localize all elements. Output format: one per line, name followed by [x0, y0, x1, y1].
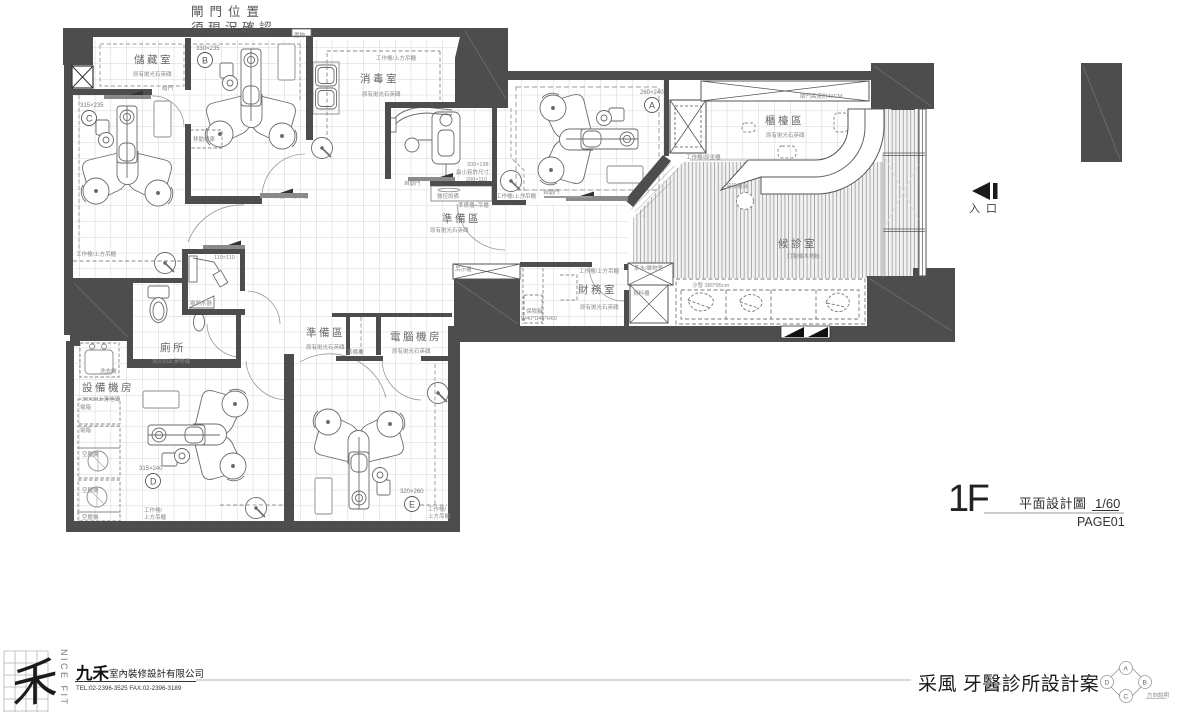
- svg-text:方向說明: 方向說明: [1147, 691, 1170, 699]
- svg-text:原有拋光石英磚: 原有拋光石英磚: [392, 347, 431, 355]
- svg-text:C: C: [86, 114, 93, 124]
- svg-text:電箱: 電箱: [80, 403, 92, 411]
- svg-text:保險箱: 保險箱: [526, 307, 543, 315]
- svg-text:320×260: 320×260: [400, 489, 424, 495]
- svg-text:E: E: [409, 500, 415, 510]
- svg-text:30X30止滑地磚: 30X30止滑地磚: [152, 357, 190, 365]
- svg-text:吊示櫃: 吊示櫃: [455, 265, 472, 273]
- svg-text:電熱水器: 電熱水器: [190, 299, 213, 307]
- svg-text:廁所: 廁所: [160, 341, 186, 354]
- svg-text:D: D: [150, 477, 157, 487]
- svg-text:工作檯/上方吊櫃: 工作檯/上方吊櫃: [376, 54, 417, 62]
- svg-text:110×110: 110×110: [214, 255, 235, 261]
- svg-text:自動門: 自動門: [404, 179, 421, 187]
- svg-text:工作檯/上方吊櫃: 工作檯/上方吊櫃: [268, 192, 309, 200]
- svg-text:A: A: [1124, 666, 1129, 673]
- svg-text:NICE FIT: NICE FIT: [59, 649, 69, 707]
- svg-text:工作檯/上方吊櫃: 工作檯/上方吊櫃: [496, 192, 537, 200]
- svg-text:B: B: [202, 56, 208, 66]
- svg-text:最小容許尺寸: 最小容許尺寸: [456, 168, 490, 176]
- svg-text:空壓機: 空壓機: [82, 513, 99, 521]
- svg-text:儲藏室: 儲藏室: [134, 53, 173, 66]
- svg-text:準備櫃+吊櫃: 準備櫃+吊櫃: [458, 201, 489, 209]
- svg-text:工作檯/上方吊櫃: 工作檯/上方吊櫃: [579, 267, 620, 275]
- svg-text:原有拋光石英磚: 原有拋光石英磚: [580, 303, 619, 311]
- svg-text:平面設計圖: 平面設計圖: [1019, 496, 1087, 511]
- svg-text:工作檯/: 工作檯/: [144, 506, 163, 514]
- svg-text:C: C: [1124, 694, 1129, 701]
- svg-text:設備機房: 設備機房: [82, 381, 134, 394]
- svg-text:電腦機房: 電腦機房: [390, 330, 442, 343]
- svg-text:PAGE01: PAGE01: [1077, 515, 1125, 529]
- svg-text:沙發 380*85cm: 沙發 380*85cm: [692, 281, 730, 289]
- svg-text:準備區: 準備區: [442, 212, 481, 225]
- svg-text:醫控設備: 醫控設備: [437, 192, 460, 200]
- svg-text:1/60: 1/60: [1095, 496, 1120, 511]
- svg-text:入口: 入口: [969, 203, 1003, 215]
- svg-text:工作檯/原坐櫃: 工作檯/原坐櫃: [686, 153, 721, 161]
- svg-text:W40*D43*H60: W40*D43*H60: [521, 316, 557, 322]
- svg-text:1F: 1F: [948, 478, 989, 520]
- svg-text:200×110: 200×110: [466, 177, 487, 183]
- svg-text:訂製橡木地板: 訂製橡木地板: [787, 252, 821, 260]
- svg-text:260×240: 260×240: [640, 90, 664, 96]
- svg-text:接待櫃台: 接待櫃台: [726, 182, 749, 190]
- svg-text:200×138: 200×138: [467, 162, 489, 168]
- svg-text:閘門位置: 閘門位置: [191, 4, 265, 19]
- svg-text:上方吊櫃: 上方吊櫃: [144, 513, 167, 521]
- svg-text:移動擋車: 移動擋車: [193, 135, 216, 143]
- svg-text:采風 牙醫診所設計案: 采風 牙醫診所設計案: [918, 673, 1099, 695]
- svg-text:原有拋光石英磚: 原有拋光石英磚: [766, 131, 805, 139]
- svg-text:準備區: 準備區: [306, 326, 345, 339]
- svg-text:30X30止滑地磚: 30X30止滑地磚: [82, 395, 120, 403]
- svg-text:原有拋光石英磚: 原有拋光石英磚: [306, 343, 345, 351]
- svg-text:置物: 置物: [294, 31, 306, 39]
- svg-text:財務室: 財務室: [578, 283, 617, 296]
- svg-text:九禾: 九禾: [75, 664, 110, 683]
- svg-text:候診室: 候診室: [778, 237, 817, 250]
- svg-text:閘門高度約40CM: 閘門高度約40CM: [800, 92, 843, 100]
- svg-text:上方吊櫃: 上方吊櫃: [428, 512, 451, 520]
- svg-text:330×235: 330×235: [196, 46, 220, 52]
- svg-text:茶水/雜物室: 茶水/雜物室: [634, 264, 664, 272]
- svg-text:須現況確認: 須現況確認: [191, 20, 276, 35]
- svg-text:工作檯/上方吊櫃: 工作檯/上方吊櫃: [76, 250, 117, 258]
- svg-text:D: D: [1105, 680, 1110, 687]
- svg-text:原有拋光石英磚: 原有拋光石英磚: [133, 70, 172, 78]
- svg-text:空壓機: 空壓機: [82, 486, 99, 494]
- svg-text:櫃檯區: 櫃檯區: [765, 114, 804, 127]
- svg-text:原有拋光石英磚: 原有拋光石英磚: [362, 90, 401, 98]
- svg-text:315×235: 315×235: [80, 103, 104, 109]
- svg-text:自動門: 自動門: [543, 188, 560, 196]
- svg-text:原有拋光石英磚: 原有拋光石英磚: [430, 226, 469, 234]
- svg-text:暗門: 暗門: [162, 84, 174, 92]
- svg-text:工作檯/: 工作檯/: [428, 505, 447, 513]
- svg-text:室內裝修設計有限公司: 室內裝修設計有限公司: [109, 668, 204, 680]
- svg-text:TEL:02-2396-3525 FAX:02-2396-: TEL:02-2396-3525 FAX:02-2396-3189: [76, 685, 182, 692]
- svg-text:A: A: [649, 101, 655, 111]
- svg-text:B: B: [1143, 680, 1147, 687]
- svg-text:空壓機: 空壓機: [82, 450, 99, 458]
- svg-text:洗衣機: 洗衣機: [100, 367, 117, 375]
- svg-text:消毒室: 消毒室: [360, 72, 399, 85]
- svg-text:電箱: 電箱: [80, 426, 92, 434]
- svg-text:資料櫃: 資料櫃: [633, 289, 650, 297]
- svg-text:315×240: 315×240: [139, 466, 163, 472]
- svg-text:準備櫃: 準備櫃: [347, 348, 364, 356]
